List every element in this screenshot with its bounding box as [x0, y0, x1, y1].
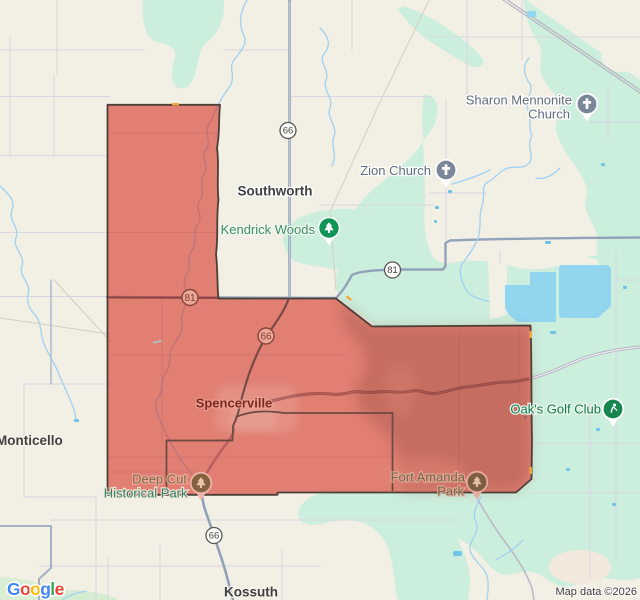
svg-text:66: 66: [209, 531, 220, 542]
svg-text:Kendrick Woods: Kendrick Woods: [221, 222, 316, 237]
svg-text:Fort Amanda: Fort Amanda: [391, 470, 466, 485]
svg-text:Map data ©2026: Map data ©2026: [556, 586, 638, 598]
svg-text:Kossuth: Kossuth: [224, 585, 278, 600]
svg-text:Google: Google: [7, 579, 65, 599]
svg-text:Southworth: Southworth: [238, 184, 313, 199]
svg-text:66: 66: [260, 332, 272, 343]
svg-text:Deep Cut: Deep Cut: [132, 472, 187, 487]
svg-text:Zion Church: Zion Church: [360, 163, 431, 178]
svg-text:Historical Park: Historical Park: [104, 486, 188, 501]
svg-text:81: 81: [387, 265, 398, 276]
svg-text:Spencerville: Spencerville: [196, 396, 273, 411]
svg-text:Sharon Mennonite: Sharon Mennonite: [466, 93, 572, 108]
svg-text:81: 81: [184, 293, 196, 304]
svg-text:Oak's Golf Club: Oak's Golf Club: [510, 402, 601, 417]
svg-text:Park: Park: [437, 484, 464, 499]
svg-text:66: 66: [283, 126, 294, 137]
svg-text:Church: Church: [528, 107, 570, 122]
svg-text:Monticello: Monticello: [0, 433, 63, 448]
